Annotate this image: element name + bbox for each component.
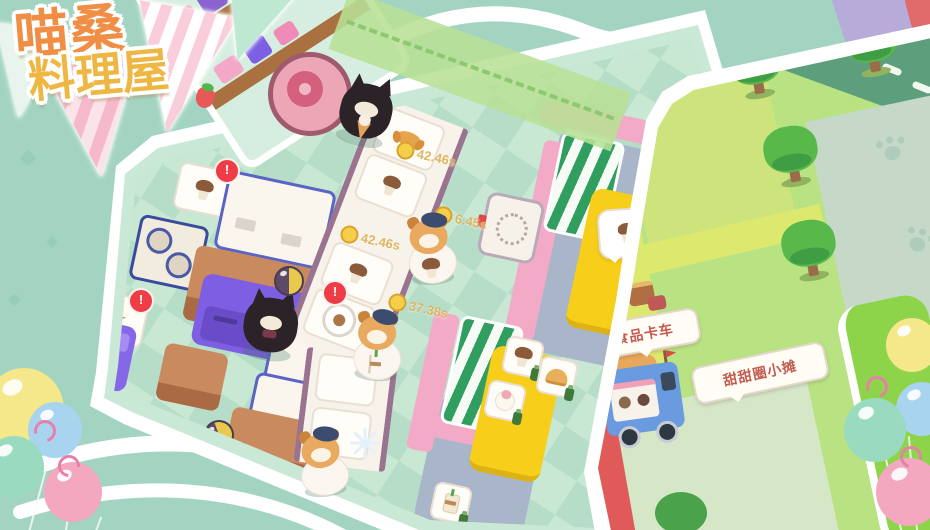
bush (655, 492, 707, 530)
tree (778, 216, 842, 288)
truck-window (609, 378, 660, 422)
shiba-waiter-drink[interactable] (348, 314, 404, 383)
food-tile-pastry[interactable] (482, 378, 527, 423)
shiba-waiter-muffin[interactable] (401, 218, 459, 288)
sparkle-effect (348, 426, 382, 460)
game-screen: 42.46s 6.45s 42.46s 37.38s ! ! ! (0, 0, 930, 530)
coin-icon (339, 224, 360, 245)
pastry-icon (493, 389, 517, 413)
balloon-yellow (0, 368, 64, 452)
bg-diamond (20, 150, 37, 167)
coin-icon (395, 140, 416, 161)
balloon-mint (0, 436, 44, 498)
shiba-waiter[interactable] (293, 431, 351, 498)
muffin-icon (378, 173, 404, 199)
game-logo: 喵桑 料理屋 (12, 0, 171, 105)
upgrade-pin[interactable]: ! (128, 288, 154, 314)
bread-icon (545, 367, 570, 387)
tree (760, 122, 824, 194)
truck-flag (666, 349, 677, 357)
muffin-icon (192, 178, 216, 202)
small-stand (647, 295, 667, 312)
bg-diamond (8, 293, 21, 306)
logo-line2: 料理屋 (26, 45, 171, 104)
juggling-ball (274, 266, 304, 296)
ribbon (30, 416, 60, 446)
muffin-icon (511, 345, 535, 369)
bg-diamond (46, 236, 57, 247)
ribbon (54, 451, 85, 482)
truck-windshield (660, 371, 676, 391)
upgrade-pin[interactable]: ! (322, 280, 348, 306)
muffin-icon (344, 261, 370, 287)
speaker-grill-icon (493, 210, 531, 248)
food-tile-bread[interactable] (534, 354, 579, 399)
drink-icon (442, 492, 461, 514)
upgrade-pin[interactable]: ! (214, 158, 240, 184)
food-tile-drink[interactable] (428, 480, 473, 525)
balloon-pink (44, 462, 102, 522)
balloon-blue (28, 402, 82, 458)
map-label-text: 甜甜圈小摊 (722, 357, 799, 388)
